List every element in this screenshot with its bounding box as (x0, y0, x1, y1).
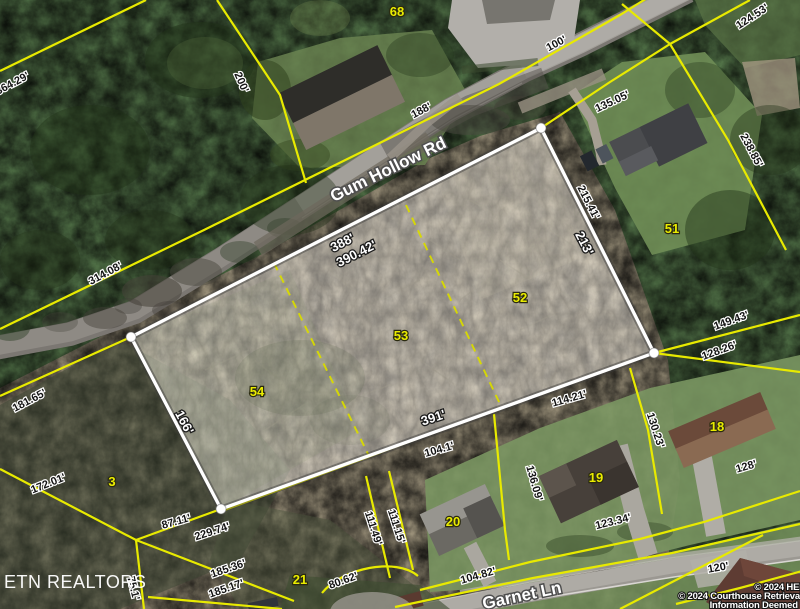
svg-text:52: 52 (513, 290, 527, 305)
svg-text:18: 18 (710, 419, 724, 434)
svg-text:Information Deemed Re: Information Deemed Re (710, 600, 800, 609)
svg-text:54: 54 (250, 384, 265, 399)
svg-text:21: 21 (293, 572, 307, 587)
svg-text:3: 3 (108, 474, 115, 489)
svg-text:ETN REALTORS: ETN REALTORS (4, 572, 146, 592)
svg-text:68: 68 (390, 4, 404, 19)
svg-text:19: 19 (589, 470, 603, 485)
svg-text:53: 53 (394, 328, 408, 343)
svg-text:20: 20 (446, 514, 460, 529)
svg-text:51: 51 (665, 221, 679, 236)
